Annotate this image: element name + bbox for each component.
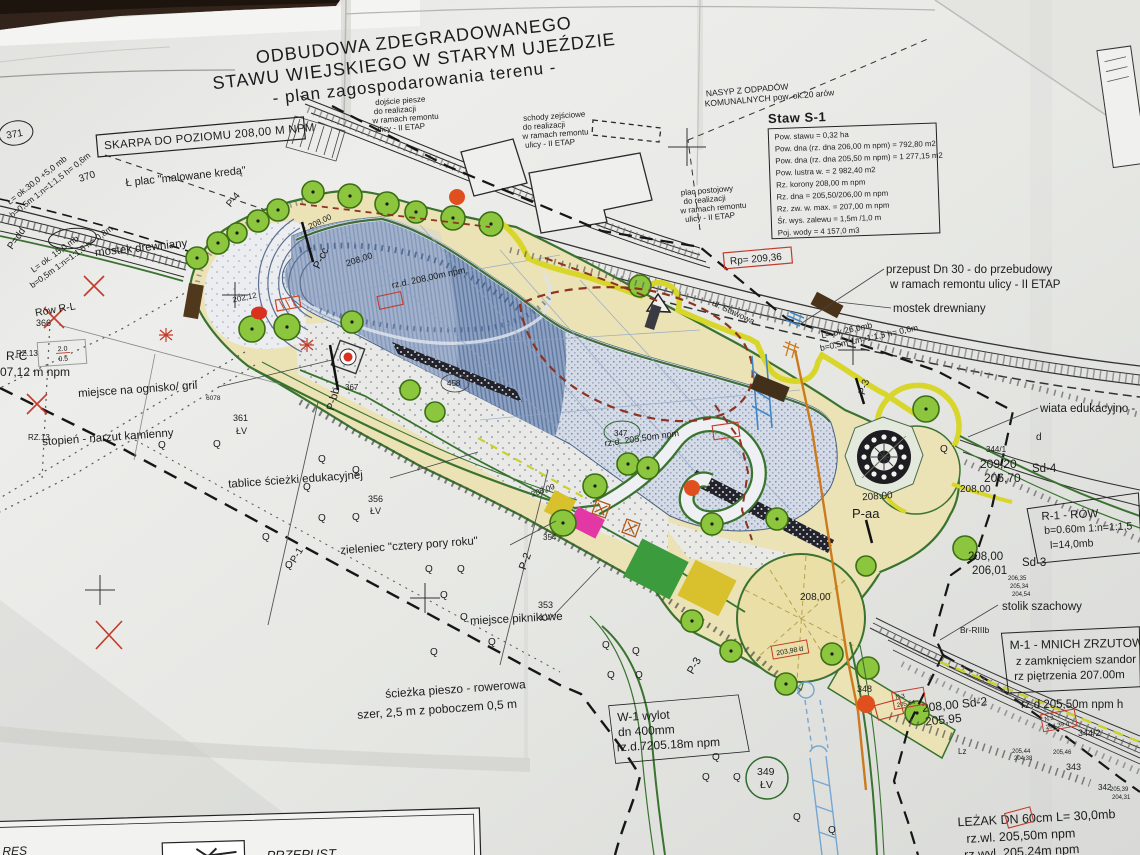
svg-text:205,46: 205,46 — [1053, 750, 1072, 756]
svg-text:W-1 wylot: W-1 wylot — [617, 707, 671, 724]
svg-text:Q: Q — [457, 564, 465, 575]
svg-text:209,20: 209,20 — [980, 457, 1017, 471]
svg-text:366: 366 — [36, 318, 51, 328]
svg-text:205,44: 205,44 — [1012, 749, 1031, 755]
svg-text:Q: Q — [440, 590, 448, 601]
svg-text:Q: Q — [262, 532, 270, 543]
svg-text:ŁV: ŁV — [236, 426, 247, 436]
svg-text:206,70: 206,70 — [984, 471, 1021, 485]
svg-text:206,35: 206,35 — [1008, 576, 1027, 582]
svg-text:208,00: 208,00 — [960, 484, 991, 495]
svg-text:Q: Q — [460, 612, 468, 623]
svg-text:R-C: R-C — [6, 349, 28, 363]
svg-text:Q: Q — [712, 752, 720, 763]
svg-text:07,12 m npm: 07,12 m npm — [0, 365, 70, 379]
svg-text:204,54: 204,54 — [1012, 592, 1031, 598]
svg-text:344/1: 344/1 — [986, 445, 1007, 454]
svg-text:Q: Q — [285, 560, 293, 571]
svg-text:Q: Q — [602, 640, 610, 651]
svg-text:458: 458 — [447, 379, 461, 388]
svg-text:dn 400mm: dn 400mm — [618, 722, 675, 739]
svg-text:205,34: 205,34 — [1010, 584, 1029, 590]
svg-text:d: d — [1036, 432, 1042, 443]
svg-text:Q: Q — [632, 646, 640, 657]
svg-text:Br-RIIIb: Br-RIIIb — [960, 625, 990, 635]
svg-text:RES: RES — [2, 844, 27, 855]
svg-text:Lz: Lz — [958, 747, 966, 756]
svg-text:Q: Q — [733, 772, 741, 783]
svg-text:Q: Q — [828, 825, 836, 836]
svg-text:361: 361 — [233, 413, 248, 423]
svg-text:Staw S-1: Staw S-1 — [768, 109, 827, 126]
svg-text:Q: Q — [940, 444, 948, 455]
svg-text:Q: Q — [303, 482, 311, 493]
svg-text:Q: Q — [213, 439, 221, 450]
svg-text:PRZEPUST: PRZEPUST — [266, 846, 337, 855]
svg-text:Q: Q — [793, 812, 801, 823]
svg-text:Q: Q — [607, 670, 615, 681]
svg-text:Q: Q — [158, 440, 166, 451]
svg-text:206,01: 206,01 — [972, 565, 1007, 577]
svg-text:Q: Q — [488, 637, 496, 648]
svg-text:Q: Q — [352, 465, 360, 476]
svg-text:353: 353 — [538, 600, 553, 610]
svg-text:Q: Q — [430, 647, 438, 658]
svg-text:ŁV: ŁV — [760, 779, 773, 791]
svg-text:354: 354 — [543, 533, 557, 542]
svg-text:204,38: 204,38 — [1014, 756, 1033, 762]
svg-text:2.0: 2.0 — [58, 346, 68, 354]
svg-text:0.5: 0.5 — [58, 356, 68, 364]
svg-text:348: 348 — [857, 684, 872, 694]
svg-text:356: 356 — [368, 494, 383, 504]
svg-text:z zamknięciem szandor: z zamknięciem szandor — [1016, 654, 1137, 668]
svg-text:wiata edukacyjno -: wiata edukacyjno - — [1039, 403, 1135, 415]
svg-text:Q: Q — [425, 564, 433, 575]
svg-text:Sd-4: Sd-4 — [1032, 463, 1057, 475]
svg-text:204,31: 204,31 — [1112, 795, 1131, 801]
svg-text:208.00: 208.00 — [862, 490, 894, 503]
svg-text:6078: 6078 — [206, 395, 221, 402]
svg-text:ŁV: ŁV — [370, 506, 381, 516]
svg-text:P-aa: P-aa — [852, 506, 880, 521]
svg-text:347: 347 — [614, 429, 628, 438]
svg-text:M-1 - MNICH ZRZUTOW: M-1 - MNICH ZRZUTOW — [1010, 636, 1140, 652]
svg-text:w ramach remontu ulicy - II ET: w ramach remontu ulicy - II ETAP — [889, 279, 1061, 291]
svg-text:205,39: 205,39 — [1110, 787, 1129, 793]
svg-text:Q: Q — [318, 454, 326, 465]
svg-text:Sd-3: Sd-3 — [1022, 557, 1046, 569]
svg-text:344/2: 344/2 — [1078, 728, 1101, 738]
svg-text:343: 343 — [1066, 762, 1081, 772]
svg-text:rz piętrzenia 207.00m: rz piętrzenia 207.00m — [1014, 669, 1125, 683]
svg-text:349: 349 — [757, 766, 775, 778]
svg-text:208,00: 208,00 — [968, 551, 1003, 563]
svg-text:Q: Q — [635, 670, 643, 681]
svg-text:l=14,0mb: l=14,0mb — [1050, 537, 1094, 551]
svg-text:Q: Q — [318, 513, 326, 524]
svg-text:Q: Q — [352, 512, 360, 523]
svg-text:367: 367 — [345, 383, 359, 392]
svg-text:Q: Q — [702, 772, 710, 783]
svg-text:342: 342 — [1098, 783, 1112, 792]
svg-text:mostek drewniany: mostek drewniany — [893, 303, 986, 315]
svg-text:przepust Dn 30 - do przebudowy: przepust Dn 30 - do przebudowy — [886, 264, 1052, 276]
svg-text:stolik szachowy: stolik szachowy — [1002, 601, 1082, 613]
svg-text:208,00: 208,00 — [800, 592, 831, 603]
